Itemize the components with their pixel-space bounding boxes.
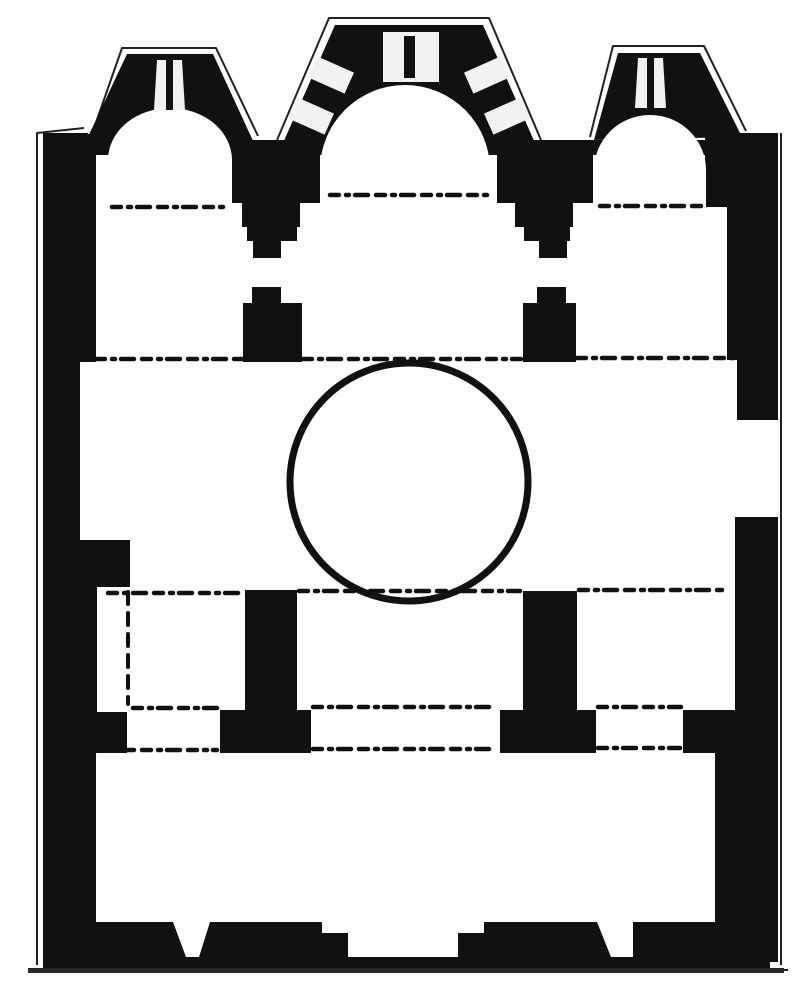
right-wall-lower	[735, 517, 778, 712]
left-wall-pilaster-b	[80, 712, 127, 753]
respond-west-4	[253, 241, 281, 258]
left-wall-pilaster-a	[80, 540, 130, 587]
left-wall-upper-inner	[80, 134, 96, 362]
pier-southwest-base	[220, 710, 311, 753]
right-wall-respond	[683, 710, 778, 753]
respond-east-3	[524, 227, 570, 241]
pier-northeast	[523, 303, 576, 362]
west-apse-interior	[108, 108, 232, 209]
ground-line	[28, 968, 784, 973]
left-wall-lower-inner	[80, 753, 96, 962]
pier-northwest-cap	[252, 287, 281, 305]
pier-northeast-cap	[537, 287, 566, 305]
pier-southeast-stem	[523, 591, 577, 712]
pier-southeast-base	[500, 710, 596, 753]
respond-east-2	[515, 203, 573, 227]
right-wall-upper	[727, 207, 778, 360]
church-floor-plan-figure	[0, 0, 805, 1000]
left-wall	[43, 134, 80, 962]
right-wall-apse-flank	[705, 137, 778, 207]
south-wall-step-b	[458, 933, 484, 957]
south-wall-step-a	[322, 933, 348, 957]
dome-circle	[290, 363, 528, 601]
central-apse-window-mullion	[404, 36, 415, 78]
right-wall-mid	[737, 358, 778, 420]
respond-east-4	[539, 241, 567, 258]
west-apse-window-mullion	[166, 60, 173, 110]
respond-west-1	[223, 143, 320, 203]
respond-west-3	[247, 227, 297, 241]
left-wall-mid-inner	[80, 587, 97, 712]
floor-plan-svg	[0, 0, 805, 1000]
pier-southwest-stem	[245, 590, 297, 712]
east-apse-window-mullion	[647, 58, 654, 108]
south-wall-seg-b	[484, 922, 611, 957]
respond-east-1	[497, 143, 593, 203]
pier-northwest	[243, 303, 302, 362]
south-wall-seg-a	[199, 922, 322, 957]
south-wall-seg-c	[633, 922, 770, 962]
respond-west-2	[242, 203, 300, 227]
south-wall-outer	[43, 957, 770, 968]
south-wall-west-jamb	[95, 922, 186, 957]
